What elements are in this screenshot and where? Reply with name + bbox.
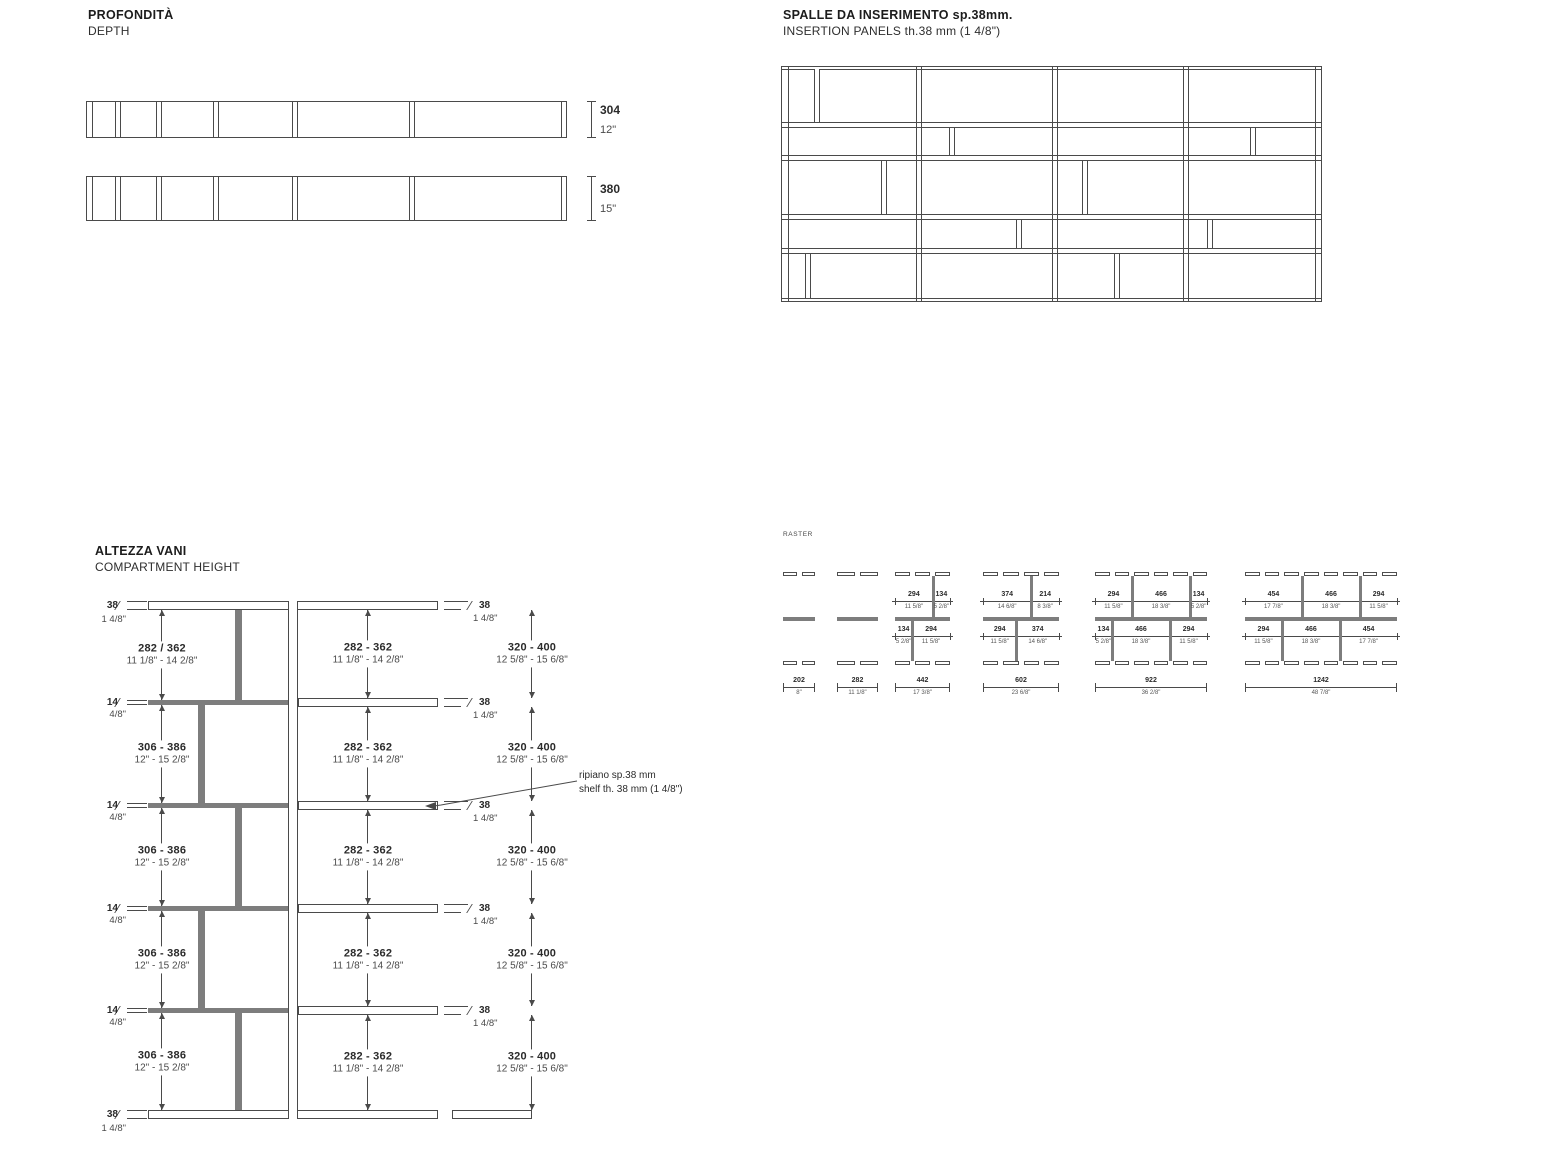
raster-dim-inches: 5 2/8" bbox=[896, 639, 911, 646]
raster-total-line bbox=[895, 687, 950, 688]
raster-dashed-line bbox=[1245, 572, 1397, 576]
raster-dash bbox=[1134, 572, 1149, 576]
raster-dim-inches: 18 3/8" bbox=[1152, 604, 1171, 611]
raster-dim-line bbox=[892, 636, 953, 637]
raster-dash bbox=[1363, 661, 1378, 665]
raster-total-line bbox=[837, 687, 878, 688]
raster-dash bbox=[983, 661, 998, 665]
raster-dim-inches: 11 5/8" bbox=[1104, 604, 1122, 611]
raster-dim-inches: 17 7/8" bbox=[1264, 604, 1283, 611]
raster-dash bbox=[1343, 572, 1358, 576]
raster-dim-mm: 454 bbox=[1363, 626, 1375, 634]
raster-total-tick bbox=[1206, 683, 1207, 692]
raster-dash bbox=[1284, 572, 1299, 576]
raster-dim-inches: 17 7/8" bbox=[1359, 639, 1378, 646]
raster-dim-mm: 466 bbox=[1305, 626, 1317, 634]
raster-panel bbox=[1169, 621, 1172, 661]
raster-dash bbox=[895, 661, 910, 665]
raster-panel bbox=[1030, 576, 1033, 617]
raster-dash bbox=[1324, 661, 1339, 665]
raster-dim-inches: 11 5/8" bbox=[922, 639, 940, 646]
raster-dim-inches: 18 3/8" bbox=[1322, 604, 1341, 611]
raster-dim-tick bbox=[950, 633, 951, 640]
raster-panel bbox=[911, 621, 914, 661]
raster-dim-mm: 134 bbox=[898, 626, 910, 634]
raster-panel bbox=[1015, 621, 1018, 661]
raster-total-mm: 202 bbox=[793, 677, 805, 685]
raster-dash bbox=[1304, 572, 1319, 576]
raster-panel bbox=[1111, 621, 1114, 661]
raster-dim-line bbox=[892, 601, 953, 602]
raster-dash bbox=[1245, 661, 1260, 665]
raster-panel bbox=[1339, 621, 1342, 661]
raster-total-line bbox=[983, 687, 1059, 688]
raster-total-inches: 17 3/8" bbox=[913, 690, 932, 697]
raster-dashed-line bbox=[983, 572, 1059, 576]
raster-total-inches: 36 2/8" bbox=[1142, 690, 1161, 697]
raster-dashed-line bbox=[783, 661, 815, 665]
raster-dash bbox=[860, 661, 878, 665]
raster-dim-tick bbox=[895, 598, 896, 605]
raster-total-tick bbox=[837, 683, 838, 692]
raster-dash bbox=[1173, 661, 1188, 665]
raster-title: RASTER bbox=[783, 531, 813, 538]
raster-dim-mm: 294 bbox=[1183, 626, 1195, 634]
raster-dash bbox=[1173, 572, 1188, 576]
raster-dim-tick bbox=[1245, 633, 1246, 640]
raster-dashed-line bbox=[837, 661, 878, 665]
raster-dim-mm: 134 bbox=[1193, 591, 1205, 599]
raster-dim-inches: 5 2/8" bbox=[934, 604, 949, 611]
raster-dash bbox=[915, 661, 930, 665]
raster-panel bbox=[1281, 621, 1284, 661]
raster-total-mm: 602 bbox=[1015, 677, 1027, 685]
raster-dim-mm: 466 bbox=[1325, 591, 1337, 599]
raster-dim-inches: 11 5/8" bbox=[1369, 604, 1387, 611]
raster-dim-tick bbox=[1245, 598, 1246, 605]
raster-shelf bbox=[895, 617, 950, 621]
raster-dash bbox=[1265, 572, 1280, 576]
raster-dim-inches: 5 2/8" bbox=[1096, 639, 1111, 646]
raster-dash bbox=[1193, 661, 1208, 665]
raster-section: RASTER 2028"28211 1/8"29411 5/8"1345 2/8… bbox=[0, 0, 1568, 1155]
raster-dash bbox=[1382, 572, 1397, 576]
raster-dim-tick bbox=[1207, 633, 1208, 640]
raster-total-inches: 11 1/8" bbox=[848, 690, 866, 697]
raster-dash bbox=[1003, 572, 1018, 576]
raster-dim-mm: 294 bbox=[994, 626, 1006, 634]
raster-dim-inches: 18 3/8" bbox=[1132, 639, 1151, 646]
raster-panel bbox=[1301, 576, 1304, 617]
raster-panel bbox=[1359, 576, 1362, 617]
raster-total-mm: 1242 bbox=[1313, 677, 1329, 685]
raster-dim-inches: 11 5/8" bbox=[1179, 639, 1197, 646]
raster-dash bbox=[1024, 661, 1039, 665]
raster-dashed-line bbox=[1245, 661, 1397, 665]
raster-shelf bbox=[783, 617, 815, 621]
raster-dim-tick bbox=[983, 633, 984, 640]
raster-dim-tick bbox=[983, 598, 984, 605]
raster-total-tick bbox=[895, 683, 896, 692]
raster-dim-inches: 11 5/8" bbox=[991, 639, 1009, 646]
raster-total-line bbox=[1245, 687, 1397, 688]
raster-dim-tick bbox=[1207, 598, 1208, 605]
raster-dim-inches: 8 3/8" bbox=[1037, 604, 1052, 611]
raster-dash bbox=[1095, 572, 1110, 576]
raster-dim-mm: 374 bbox=[1032, 626, 1044, 634]
raster-dim-line bbox=[1242, 601, 1400, 602]
raster-dim-inches: 11 5/8" bbox=[1254, 639, 1272, 646]
raster-dash bbox=[1115, 661, 1130, 665]
raster-total-line bbox=[1095, 687, 1207, 688]
raster-dash bbox=[1044, 661, 1059, 665]
raster-total-mm: 282 bbox=[852, 677, 864, 685]
raster-dim-mm: 374 bbox=[1001, 591, 1013, 599]
raster-total-tick bbox=[1095, 683, 1096, 692]
raster-total-tick bbox=[783, 683, 784, 692]
raster-dim-inches: 18 3/8" bbox=[1302, 639, 1321, 646]
raster-dim-inches: 14 6/8" bbox=[998, 604, 1017, 611]
raster-dim-mm: 134 bbox=[936, 591, 948, 599]
raster-dash bbox=[1245, 572, 1260, 576]
raster-dim-mm: 294 bbox=[925, 626, 937, 634]
raster-panel bbox=[1131, 576, 1134, 617]
raster-dim-tick bbox=[1095, 598, 1096, 605]
raster-dim-mm: 134 bbox=[1098, 626, 1110, 634]
raster-dash bbox=[1324, 572, 1339, 576]
raster-dim-mm: 294 bbox=[1258, 626, 1270, 634]
raster-total-tick bbox=[949, 683, 950, 692]
raster-dash bbox=[1003, 661, 1018, 665]
raster-dim-tick bbox=[1059, 598, 1060, 605]
raster-dim-mm: 454 bbox=[1268, 591, 1280, 599]
raster-dash bbox=[1382, 661, 1397, 665]
raster-dash bbox=[983, 572, 998, 576]
raster-dash bbox=[1304, 661, 1319, 665]
raster-total-tick bbox=[1245, 683, 1246, 692]
raster-dim-mm: 294 bbox=[1108, 591, 1120, 599]
raster-total-tick bbox=[983, 683, 984, 692]
raster-dash bbox=[783, 661, 797, 665]
raster-dim-tick bbox=[1397, 633, 1398, 640]
raster-total-line bbox=[783, 687, 815, 688]
raster-dim-mm: 294 bbox=[908, 591, 920, 599]
raster-total-mm: 442 bbox=[917, 677, 929, 685]
raster-dashed-line bbox=[895, 572, 950, 576]
raster-dashed-line bbox=[1095, 661, 1207, 665]
raster-dash bbox=[802, 661, 816, 665]
raster-total-tick bbox=[1396, 683, 1397, 692]
raster-dim-mm: 214 bbox=[1039, 591, 1051, 599]
raster-dim-line bbox=[980, 601, 1062, 602]
raster-dash bbox=[915, 572, 930, 576]
raster-dash bbox=[1134, 661, 1149, 665]
raster-dim-tick bbox=[950, 598, 951, 605]
raster-dash bbox=[1284, 661, 1299, 665]
raster-dim-inches: 11 5/8" bbox=[905, 604, 923, 611]
raster-dashed-line bbox=[895, 661, 950, 665]
raster-dim-line bbox=[1092, 636, 1210, 637]
raster-total-inches: 48 7/8" bbox=[1312, 690, 1331, 697]
raster-shelf bbox=[1245, 617, 1397, 621]
raster-dash bbox=[860, 572, 878, 576]
raster-total-mm: 922 bbox=[1145, 677, 1157, 685]
raster-dash bbox=[935, 661, 950, 665]
raster-total-tick bbox=[814, 683, 815, 692]
raster-dash bbox=[1265, 661, 1280, 665]
raster-dim-line bbox=[980, 636, 1062, 637]
raster-dim-tick bbox=[1397, 598, 1398, 605]
raster-dash bbox=[935, 572, 950, 576]
raster-total-inches: 23 6/8" bbox=[1012, 690, 1031, 697]
raster-dim-inches: 14 6/8" bbox=[1028, 639, 1047, 646]
raster-dashed-line bbox=[983, 661, 1059, 665]
raster-dashed-line bbox=[783, 572, 815, 576]
raster-dash bbox=[1095, 661, 1110, 665]
raster-shelf bbox=[983, 617, 1059, 621]
raster-total-inches: 8" bbox=[796, 690, 801, 697]
raster-dim-mm: 466 bbox=[1135, 626, 1147, 634]
raster-dash bbox=[1154, 572, 1169, 576]
raster-dash bbox=[1193, 572, 1208, 576]
raster-total-tick bbox=[877, 683, 878, 692]
raster-dash bbox=[837, 661, 855, 665]
raster-dash bbox=[1343, 661, 1358, 665]
raster-dim-mm: 466 bbox=[1155, 591, 1167, 599]
raster-dash bbox=[837, 572, 855, 576]
raster-dash bbox=[1044, 572, 1059, 576]
raster-shelf bbox=[837, 617, 878, 621]
catalog-page: PROFONDITÀ DEPTH 30412"38015" SPALLE DA … bbox=[0, 0, 1568, 1155]
raster-dash bbox=[1154, 661, 1169, 665]
raster-dash bbox=[895, 572, 910, 576]
raster-dim-line bbox=[1242, 636, 1400, 637]
raster-dash bbox=[802, 572, 816, 576]
raster-dashed-line bbox=[837, 572, 878, 576]
raster-total-tick bbox=[1058, 683, 1059, 692]
raster-dim-tick bbox=[1059, 633, 1060, 640]
raster-dim-inches: 5 2/8" bbox=[1191, 604, 1206, 611]
raster-dash bbox=[1363, 572, 1378, 576]
raster-dim-line bbox=[1092, 601, 1210, 602]
raster-dash bbox=[783, 572, 797, 576]
raster-dash bbox=[1115, 572, 1130, 576]
raster-dim-mm: 294 bbox=[1373, 591, 1385, 599]
